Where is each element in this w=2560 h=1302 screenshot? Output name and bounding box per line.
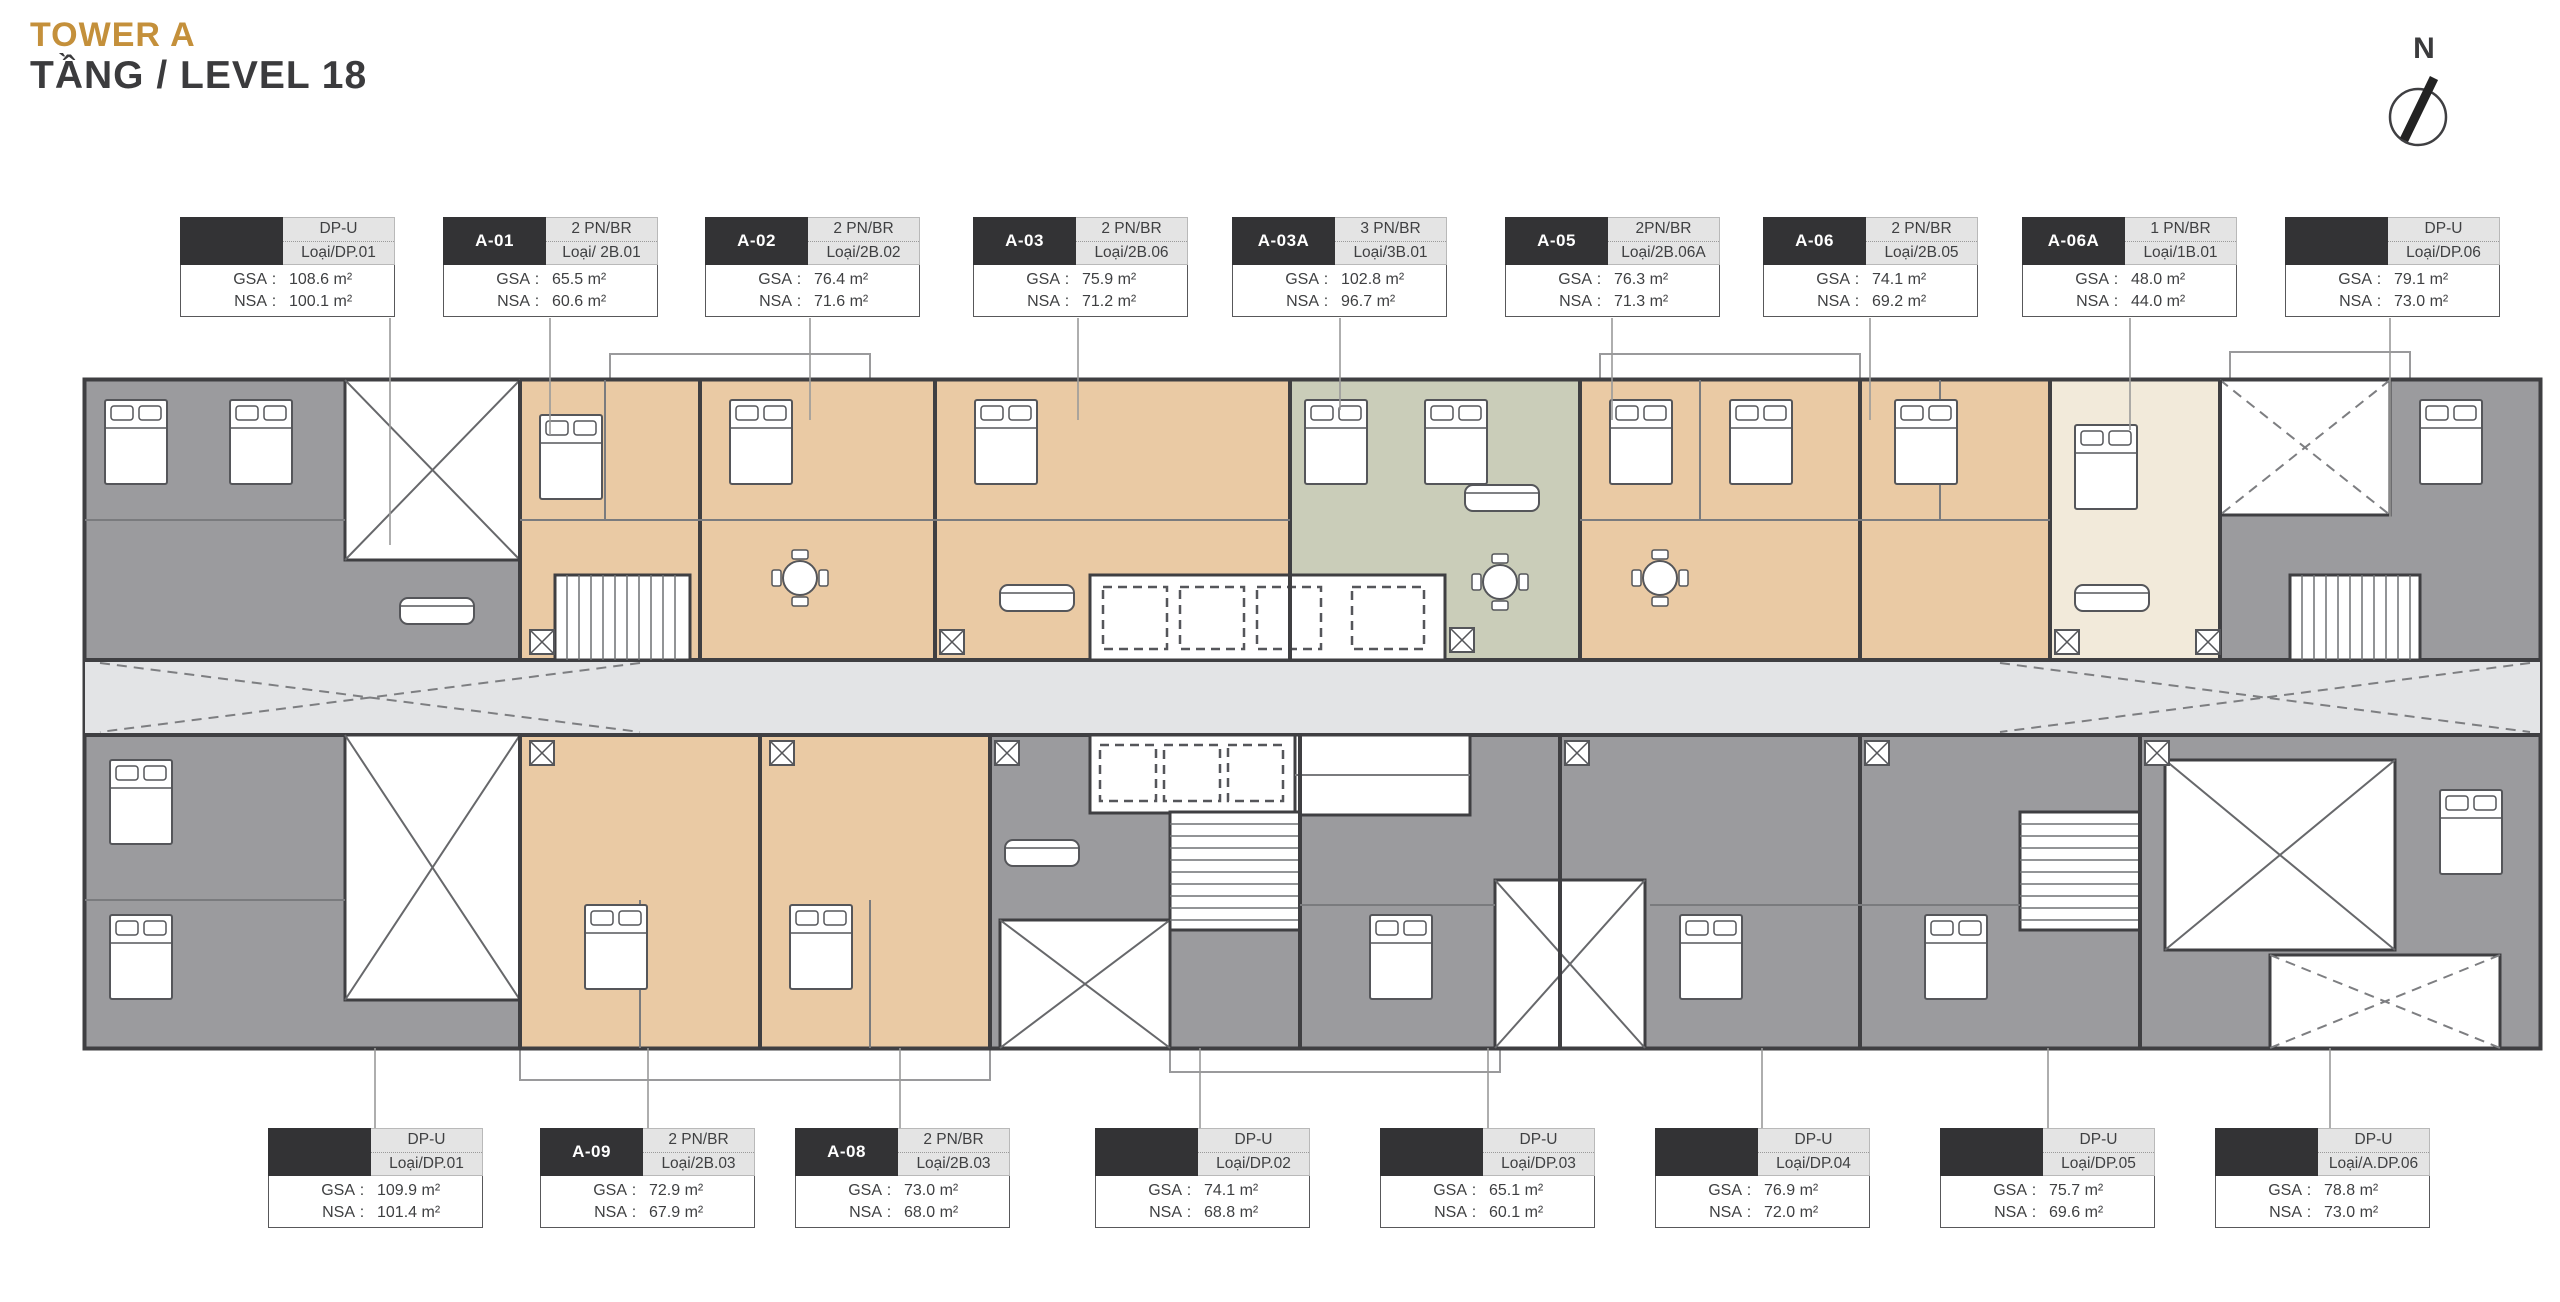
- nsa-label: NSA: [1656, 1203, 1742, 1222]
- gsa-value: 109.9 m²: [369, 1181, 482, 1200]
- nsa-row: NSA : 72.0 m²: [1656, 1203, 1869, 1222]
- nsa-row: NSA : 71.3 m²: [1506, 292, 1719, 311]
- card-body: GSA : 73.0 m² NSA : 68.0 m²: [795, 1176, 1010, 1228]
- nsa-label: NSA: [1506, 292, 1592, 311]
- card-header: DP-U Loại/DP.01: [180, 217, 395, 265]
- nsa-value: 101.4 m²: [369, 1203, 482, 1222]
- unit-type: DP-U Loại/DP.01: [283, 217, 395, 265]
- unit-type-name: 2PN/BR: [1608, 218, 1719, 242]
- card-body: GSA : 75.9 m² NSA : 71.2 m²: [973, 265, 1188, 317]
- nsa-label: NSA: [1233, 292, 1319, 311]
- gsa-label: GSA: [1941, 1181, 2027, 1200]
- gsa-row: GSA : 74.1 m²: [1764, 270, 1977, 289]
- unit-type-code: Loại/DP.05: [2043, 1153, 2154, 1176]
- card-header: A-03 2 PN/BR Loại/2B.06: [973, 217, 1188, 265]
- unit-code: [1380, 1128, 1483, 1176]
- unit-type: 2 PN/BR Loại/ 2B.01: [546, 217, 658, 265]
- nsa-label: NSA: [1764, 292, 1850, 311]
- unit-type: 2 PN/BR Loại/2B.02: [808, 217, 920, 265]
- gsa-value: 73.0 m²: [896, 1181, 1009, 1200]
- gsa-value: 74.1 m²: [1196, 1181, 1309, 1200]
- unit-type: DP-U Loại/DP.05: [2043, 1128, 2155, 1176]
- gsa-label: GSA: [1764, 270, 1850, 289]
- gsa-value: 65.1 m²: [1481, 1181, 1594, 1200]
- gsa-value: 75.7 m²: [2041, 1181, 2154, 1200]
- unit-code: A-05: [1505, 217, 1608, 265]
- unit-type-name: DP-U: [371, 1129, 482, 1153]
- nsa-value: 100.1 m²: [281, 292, 394, 311]
- card-body: GSA : 74.1 m² NSA : 69.2 m²: [1763, 265, 1978, 317]
- gsa-value: 72.9 m²: [641, 1181, 754, 1200]
- card-body: GSA : 48.0 m² NSA : 44.0 m²: [2022, 265, 2237, 317]
- nsa-label: NSA: [1096, 1203, 1182, 1222]
- unit-type-name: 2 PN/BR: [1076, 218, 1187, 242]
- nsa-label: NSA: [706, 292, 792, 311]
- unit-type-code: Loại/ 2B.01: [546, 242, 657, 265]
- nsa-label: NSA: [444, 292, 530, 311]
- gsa-row: GSA : 65.1 m²: [1381, 1181, 1594, 1200]
- nsa-value: 71.6 m²: [806, 292, 919, 311]
- unit-code: [2215, 1128, 2318, 1176]
- unit-type-name: 1 PN/BR: [2125, 218, 2236, 242]
- card-body: GSA : 76.9 m² NSA : 72.0 m²: [1655, 1176, 1870, 1228]
- card-header: A-08 2 PN/BR Loại/2B.03: [795, 1128, 1010, 1176]
- unit-code: A-09: [540, 1128, 643, 1176]
- card-body: GSA : 108.6 m² NSA : 100.1 m²: [180, 265, 395, 317]
- unit-type-name: DP-U: [2043, 1129, 2154, 1153]
- unit-code: A-02: [705, 217, 808, 265]
- nsa-row: NSA : 101.4 m²: [269, 1203, 482, 1222]
- card-header: A-06A 1 PN/BR Loại/1B.01: [2022, 217, 2237, 265]
- nsa-label: NSA: [1381, 1203, 1467, 1222]
- gsa-row: GSA : 48.0 m²: [2023, 270, 2236, 289]
- gsa-label: GSA: [2286, 270, 2372, 289]
- nsa-row: NSA : 73.0 m²: [2216, 1203, 2429, 1222]
- card-body: GSA : 65.1 m² NSA : 60.1 m²: [1380, 1176, 1595, 1228]
- unit-info-card-A-08: A-08 2 PN/BR Loại/2B.03 GSA : 73.0 m² NS…: [795, 1128, 1010, 1228]
- nsa-row: NSA : 44.0 m²: [2023, 292, 2236, 311]
- unit-code: [268, 1128, 371, 1176]
- gsa-row: GSA : 76.4 m²: [706, 270, 919, 289]
- gsa-row: GSA : 76.3 m²: [1506, 270, 1719, 289]
- nsa-value: 60.6 m²: [544, 292, 657, 311]
- unit-type-code: Loại/2B.03: [643, 1153, 754, 1176]
- card-header: A-09 2 PN/BR Loại/2B.03: [540, 1128, 755, 1176]
- unit-type-code: Loại/1B.01: [2125, 242, 2236, 265]
- card-header: DP-U Loại/DP.02: [1095, 1128, 1310, 1176]
- gsa-label: GSA: [974, 270, 1060, 289]
- unit-type-code: Loại/DP.02: [1198, 1153, 1309, 1176]
- unit-type: 1 PN/BR Loại/1B.01: [2125, 217, 2237, 265]
- unit-info-card-A-01: A-01 2 PN/BR Loại/ 2B.01 GSA : 65.5 m² N…: [443, 217, 658, 317]
- unit-type: DP-U Loại/DP.01: [371, 1128, 483, 1176]
- unit-type-code: Loại/DP.06: [2388, 242, 2499, 265]
- gsa-label: GSA: [269, 1181, 355, 1200]
- card-header: DP-U Loại/DP.05: [1940, 1128, 2155, 1176]
- unit-type-code: Loại/DP.03: [1483, 1153, 1594, 1176]
- card-body: GSA : 76.3 m² NSA : 71.3 m²: [1505, 265, 1720, 317]
- unit-info-card-A-06: A-06 2 PN/BR Loại/2B.05 GSA : 74.1 m² NS…: [1763, 217, 1978, 317]
- unit-code: [1940, 1128, 2043, 1176]
- card-header: DP-U Loại/DP.03: [1380, 1128, 1595, 1176]
- gsa-row: GSA : 74.1 m²: [1096, 1181, 1309, 1200]
- card-body: GSA : 76.4 m² NSA : 71.6 m²: [705, 265, 920, 317]
- gsa-row: GSA : 102.8 m²: [1233, 270, 1446, 289]
- gsa-label: GSA: [1096, 1181, 1182, 1200]
- gsa-label: GSA: [2023, 270, 2109, 289]
- card-header: DP-U Loại/DP.06: [2285, 217, 2500, 265]
- gsa-label: GSA: [444, 270, 530, 289]
- nsa-label: NSA: [541, 1203, 627, 1222]
- floor-plan-page: TOWER A TẦNG / LEVEL 18: [0, 0, 2560, 1302]
- card-body: GSA : 102.8 m² NSA : 96.7 m²: [1232, 265, 1447, 317]
- card-header: A-06 2 PN/BR Loại/2B.05: [1763, 217, 1978, 265]
- card-body: GSA : 78.8 m² NSA : 73.0 m²: [2215, 1176, 2430, 1228]
- nsa-label: NSA: [796, 1203, 882, 1222]
- gsa-row: GSA : 65.5 m²: [444, 270, 657, 289]
- nsa-value: 72.0 m²: [1756, 1203, 1869, 1222]
- gsa-value: 78.8 m²: [2316, 1181, 2429, 1200]
- card-header: A-02 2 PN/BR Loại/2B.02: [705, 217, 920, 265]
- unit-code: [1095, 1128, 1198, 1176]
- nsa-row: NSA : 71.2 m²: [974, 292, 1187, 311]
- nsa-value: 69.2 m²: [1864, 292, 1977, 311]
- nsa-label: NSA: [269, 1203, 355, 1222]
- nsa-row: NSA : 100.1 m²: [181, 292, 394, 311]
- gsa-label: GSA: [796, 1181, 882, 1200]
- unit-type: DP-U Loại/DP.03: [1483, 1128, 1595, 1176]
- unit-type-name: DP-U: [283, 218, 394, 242]
- nsa-value: 69.6 m²: [2041, 1203, 2154, 1222]
- unit-code: A-08: [795, 1128, 898, 1176]
- nsa-row: NSA : 69.2 m²: [1764, 292, 1977, 311]
- unit-code: A-03A: [1232, 217, 1335, 265]
- gsa-label: GSA: [1233, 270, 1319, 289]
- nsa-value: 73.0 m²: [2316, 1203, 2429, 1222]
- nsa-row: NSA : 60.1 m²: [1381, 1203, 1594, 1222]
- card-header: A-03A 3 PN/BR Loại/3B.01: [1232, 217, 1447, 265]
- unit-type: 2 PN/BR Loại/2B.06: [1076, 217, 1188, 265]
- nsa-value: 67.9 m²: [641, 1203, 754, 1222]
- nsa-label: NSA: [181, 292, 267, 311]
- unit-info-card-Loại/DP.04: DP-U Loại/DP.04 GSA : 76.9 m² NSA : 72.0…: [1655, 1128, 1870, 1228]
- unit-type-name: 2 PN/BR: [546, 218, 657, 242]
- gsa-value: 48.0 m²: [2123, 270, 2236, 289]
- nsa-row: NSA : 60.6 m²: [444, 292, 657, 311]
- nsa-label: NSA: [1941, 1203, 2027, 1222]
- card-body: GSA : 74.1 m² NSA : 68.8 m²: [1095, 1176, 1310, 1228]
- gsa-row: GSA : 76.9 m²: [1656, 1181, 1869, 1200]
- unit-info-card-A-02: A-02 2 PN/BR Loại/2B.02 GSA : 76.4 m² NS…: [705, 217, 920, 317]
- gsa-label: GSA: [706, 270, 792, 289]
- unit-info-card-Loại/DP.03: DP-U Loại/DP.03 GSA : 65.1 m² NSA : 60.1…: [1380, 1128, 1595, 1228]
- gsa-label: GSA: [541, 1181, 627, 1200]
- unit-type-name: DP-U: [1758, 1129, 1869, 1153]
- gsa-value: 102.8 m²: [1333, 270, 1446, 289]
- unit-info-card-Loại/DP.02: DP-U Loại/DP.02 GSA : 74.1 m² NSA : 68.8…: [1095, 1128, 1310, 1228]
- unit-code: A-03: [973, 217, 1076, 265]
- unit-type-name: 2 PN/BR: [1866, 218, 1977, 242]
- unit-type-code: Loại/A.DP.06: [2318, 1153, 2429, 1176]
- gsa-value: 79.1 m²: [2386, 270, 2499, 289]
- nsa-value: 68.0 m²: [896, 1203, 1009, 1222]
- gsa-label: GSA: [1381, 1181, 1467, 1200]
- card-body: GSA : 79.1 m² NSA : 73.0 m²: [2285, 265, 2500, 317]
- unit-info-card-Loại/DP.06: DP-U Loại/DP.06 GSA : 79.1 m² NSA : 73.0…: [2285, 217, 2500, 317]
- gsa-row: GSA : 75.7 m²: [1941, 1181, 2154, 1200]
- card-header: DP-U Loại/DP.01: [268, 1128, 483, 1176]
- unit-type-code: Loại/2B.05: [1866, 242, 1977, 265]
- gsa-value: 76.3 m²: [1606, 270, 1719, 289]
- unit-info-card-A-05: A-05 2PN/BR Loại/2B.06A GSA : 76.3 m² NS…: [1505, 217, 1720, 317]
- nsa-row: NSA : 67.9 m²: [541, 1203, 754, 1222]
- nsa-value: 71.3 m²: [1606, 292, 1719, 311]
- unit-code: [2285, 217, 2388, 265]
- gsa-row: GSA : 109.9 m²: [269, 1181, 482, 1200]
- unit-code: A-06: [1763, 217, 1866, 265]
- gsa-row: GSA : 72.9 m²: [541, 1181, 754, 1200]
- card-body: GSA : 109.9 m² NSA : 101.4 m²: [268, 1176, 483, 1228]
- unit-type-code: Loại/DP.01: [371, 1153, 482, 1176]
- nsa-row: NSA : 73.0 m²: [2286, 292, 2499, 311]
- unit-type-name: DP-U: [2388, 218, 2499, 242]
- unit-type-name: 2 PN/BR: [898, 1129, 1009, 1153]
- card-header: A-05 2PN/BR Loại/2B.06A: [1505, 217, 1720, 265]
- unit-type: DP-U Loại/DP.06: [2388, 217, 2500, 265]
- gsa-row: GSA : 78.8 m²: [2216, 1181, 2429, 1200]
- gsa-row: GSA : 75.9 m²: [974, 270, 1187, 289]
- unit-type-code: Loại/DP.01: [283, 242, 394, 265]
- gsa-value: 65.5 m²: [544, 270, 657, 289]
- unit-info-card-Loại/A.DP.06: DP-U Loại/A.DP.06 GSA : 78.8 m² NSA : 73…: [2215, 1128, 2430, 1228]
- card-body: GSA : 65.5 m² NSA : 60.6 m²: [443, 265, 658, 317]
- nsa-row: NSA : 96.7 m²: [1233, 292, 1446, 311]
- unit-type-code: Loại/2B.02: [808, 242, 919, 265]
- unit-type: 2PN/BR Loại/2B.06A: [1608, 217, 1720, 265]
- unit-type-name: DP-U: [1483, 1129, 1594, 1153]
- unit-type-code: Loại/DP.04: [1758, 1153, 1869, 1176]
- gsa-value: 75.9 m²: [1074, 270, 1187, 289]
- nsa-label: NSA: [2286, 292, 2372, 311]
- unit-type: DP-U Loại/DP.04: [1758, 1128, 1870, 1176]
- gsa-value: 108.6 m²: [281, 270, 394, 289]
- nsa-value: 68.8 m²: [1196, 1203, 1309, 1222]
- gsa-row: GSA : 73.0 m²: [796, 1181, 1009, 1200]
- unit-info-card-Loại/DP.05: DP-U Loại/DP.05 GSA : 75.7 m² NSA : 69.6…: [1940, 1128, 2155, 1228]
- unit-info-card-A-03A: A-03A 3 PN/BR Loại/3B.01 GSA : 102.8 m² …: [1232, 217, 1447, 317]
- unit-type-name: DP-U: [2318, 1129, 2429, 1153]
- gsa-label: GSA: [2216, 1181, 2302, 1200]
- unit-type-name: DP-U: [1198, 1129, 1309, 1153]
- gsa-label: GSA: [1506, 270, 1592, 289]
- unit-type: 2 PN/BR Loại/2B.05: [1866, 217, 1978, 265]
- nsa-value: 44.0 m²: [2123, 292, 2236, 311]
- nsa-label: NSA: [2023, 292, 2109, 311]
- unit-type-code: Loại/2B.06: [1076, 242, 1187, 265]
- card-body: GSA : 75.7 m² NSA : 69.6 m²: [1940, 1176, 2155, 1228]
- unit-type-code: Loại/2B.06A: [1608, 242, 1719, 265]
- unit-type-name: 2 PN/BR: [643, 1129, 754, 1153]
- gsa-row: GSA : 108.6 m²: [181, 270, 394, 289]
- unit-code: [180, 217, 283, 265]
- nsa-row: NSA : 68.8 m²: [1096, 1203, 1309, 1222]
- unit-type: 3 PN/BR Loại/3B.01: [1335, 217, 1447, 265]
- unit-info-card-A-06A: A-06A 1 PN/BR Loại/1B.01 GSA : 48.0 m² N…: [2022, 217, 2237, 317]
- nsa-value: 60.1 m²: [1481, 1203, 1594, 1222]
- nsa-value: 96.7 m²: [1333, 292, 1446, 311]
- unit-type: DP-U Loại/A.DP.06: [2318, 1128, 2430, 1176]
- card-header: DP-U Loại/DP.04: [1655, 1128, 1870, 1176]
- card-body: GSA : 72.9 m² NSA : 67.9 m²: [540, 1176, 755, 1228]
- unit-info-card-Loại/DP.01: DP-U Loại/DP.01 GSA : 108.6 m² NSA : 100…: [180, 217, 395, 317]
- unit-code: A-06A: [2022, 217, 2125, 265]
- unit-info-card-A-03: A-03 2 PN/BR Loại/2B.06 GSA : 75.9 m² NS…: [973, 217, 1188, 317]
- nsa-row: NSA : 69.6 m²: [1941, 1203, 2154, 1222]
- gsa-row: GSA : 79.1 m²: [2286, 270, 2499, 289]
- unit-cards-layer: DP-U Loại/DP.01 GSA : 108.6 m² NSA : 100…: [0, 0, 2560, 1302]
- nsa-value: 73.0 m²: [2386, 292, 2499, 311]
- gsa-value: 74.1 m²: [1864, 270, 1977, 289]
- unit-type-name: 2 PN/BR: [808, 218, 919, 242]
- nsa-label: NSA: [974, 292, 1060, 311]
- unit-type-code: Loại/2B.03: [898, 1153, 1009, 1176]
- gsa-label: GSA: [181, 270, 267, 289]
- nsa-row: NSA : 71.6 m²: [706, 292, 919, 311]
- unit-code: [1655, 1128, 1758, 1176]
- unit-type: 2 PN/BR Loại/2B.03: [643, 1128, 755, 1176]
- unit-type-code: Loại/3B.01: [1335, 242, 1446, 265]
- unit-type-name: 3 PN/BR: [1335, 218, 1446, 242]
- unit-type: 2 PN/BR Loại/2B.03: [898, 1128, 1010, 1176]
- unit-info-card-A-09: A-09 2 PN/BR Loại/2B.03 GSA : 72.9 m² NS…: [540, 1128, 755, 1228]
- nsa-value: 71.2 m²: [1074, 292, 1187, 311]
- card-header: DP-U Loại/A.DP.06: [2215, 1128, 2430, 1176]
- unit-code: A-01: [443, 217, 546, 265]
- nsa-label: NSA: [2216, 1203, 2302, 1222]
- unit-type: DP-U Loại/DP.02: [1198, 1128, 1310, 1176]
- unit-info-card-Loại/DP.01: DP-U Loại/DP.01 GSA : 109.9 m² NSA : 101…: [268, 1128, 483, 1228]
- nsa-row: NSA : 68.0 m²: [796, 1203, 1009, 1222]
- card-header: A-01 2 PN/BR Loại/ 2B.01: [443, 217, 658, 265]
- gsa-value: 76.9 m²: [1756, 1181, 1869, 1200]
- gsa-label: GSA: [1656, 1181, 1742, 1200]
- gsa-value: 76.4 m²: [806, 270, 919, 289]
